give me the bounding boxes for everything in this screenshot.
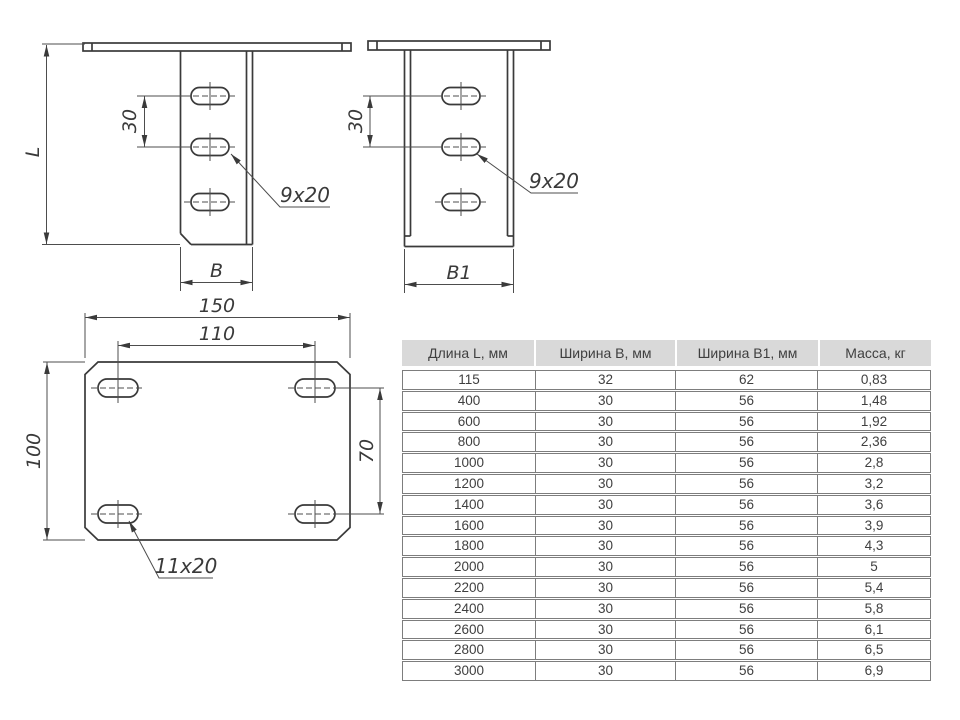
col-header-width-b1: Ширина B1, мм	[677, 340, 818, 366]
cell-width-b: 30	[536, 413, 676, 431]
plate-overall-width-dim: 150	[199, 295, 235, 317]
cell-mass: 0,83	[818, 371, 930, 389]
cell-width-b1: 56	[676, 662, 818, 680]
cell-length: 1600	[403, 517, 536, 535]
table-row: 2600 30 56 6,1	[402, 620, 931, 640]
table-row: 1200 30 56 3,2	[402, 474, 931, 494]
cell-mass: 3,2	[818, 475, 930, 493]
cell-length: 115	[403, 371, 536, 389]
technical-drawing-page: L 30 9x20 B	[0, 0, 960, 720]
cell-mass: 3,9	[818, 517, 930, 535]
cell-width-b1: 56	[676, 433, 818, 451]
cell-width-b1: 56	[676, 475, 818, 493]
cell-length: 800	[403, 433, 536, 451]
cell-length: 1200	[403, 475, 536, 493]
plate-view: 150 110 100 70 11x20	[23, 295, 384, 578]
cell-width-b: 30	[536, 662, 676, 680]
table-row: 1000 30 56 2,8	[402, 453, 931, 473]
cell-mass: 3,6	[818, 496, 930, 514]
cell-width-b: 30	[536, 537, 676, 555]
table-row: 2200 30 56 5,4	[402, 578, 931, 598]
plate-slot-size-label: 11x20	[155, 554, 218, 578]
table-row: 1600 30 56 3,9	[402, 516, 931, 536]
cell-width-b1: 56	[676, 454, 818, 472]
cell-width-b1: 56	[676, 392, 818, 410]
cell-width-b: 32	[536, 371, 676, 389]
cell-width-b: 30	[536, 475, 676, 493]
plate-hole-span-x-dim: 110	[199, 323, 235, 345]
cell-width-b1: 56	[676, 641, 818, 659]
cell-width-b: 30	[536, 517, 676, 535]
cell-length: 1000	[403, 454, 536, 472]
cell-width-b1: 56	[676, 579, 818, 597]
cell-width-b1: 56	[676, 600, 818, 618]
cell-mass: 5	[818, 558, 930, 576]
side-width-dim: B1	[446, 262, 471, 284]
cell-length: 2400	[403, 600, 536, 618]
col-header-mass: Масса, кг	[820, 340, 931, 366]
cell-mass: 6,5	[818, 641, 930, 659]
cell-width-b: 30	[536, 641, 676, 659]
front-width-dim: B	[210, 260, 223, 282]
cell-width-b1: 56	[676, 496, 818, 514]
side-view: 30 9x20 B1	[345, 41, 579, 293]
table-row: 2800 30 56 6,5	[402, 640, 931, 660]
cell-mass: 6,1	[818, 621, 930, 639]
table-row: 115 32 62 0,83	[402, 370, 931, 390]
cell-width-b: 30	[536, 496, 676, 514]
cell-width-b: 30	[536, 600, 676, 618]
cell-mass: 2,36	[818, 433, 930, 451]
table-row: 800 30 56 2,36	[402, 432, 931, 452]
cell-width-b: 30	[536, 579, 676, 597]
cell-width-b: 30	[536, 392, 676, 410]
cell-width-b: 30	[536, 454, 676, 472]
cell-length: 600	[403, 413, 536, 431]
cell-mass: 4,3	[818, 537, 930, 555]
front-view: L 30 9x20 B	[22, 43, 351, 291]
col-header-length: Длина L, мм	[402, 340, 534, 366]
cell-mass: 5,8	[818, 600, 930, 618]
table-row: 1800 30 56 4,3	[402, 536, 931, 556]
cell-width-b: 30	[536, 558, 676, 576]
cell-mass: 6,9	[818, 662, 930, 680]
front-slot-size-label: 9x20	[280, 183, 330, 207]
cell-width-b1: 62	[676, 371, 818, 389]
side-hole-spacing-dim: 30	[345, 109, 367, 133]
table-row: 2400 30 56 5,8	[402, 599, 931, 619]
front-length-dim: L	[22, 147, 44, 158]
col-header-width-b: Ширина B, мм	[536, 340, 675, 366]
spec-table-body: 115 32 62 0,83 400 30 56 1,48 600 30 56 …	[402, 370, 931, 681]
front-hole-spacing-dim: 30	[119, 109, 141, 133]
cell-mass: 1,92	[818, 413, 930, 431]
spec-table: Длина L, мм Ширина B, мм Ширина B1, мм М…	[402, 340, 931, 682]
cell-length: 1400	[403, 496, 536, 514]
cell-width-b1: 56	[676, 558, 818, 576]
cell-width-b: 30	[536, 433, 676, 451]
cell-length: 3000	[403, 662, 536, 680]
cell-width-b1: 56	[676, 621, 818, 639]
cell-width-b1: 56	[676, 517, 818, 535]
table-row: 2000 30 56 5	[402, 557, 931, 577]
cell-length: 2800	[403, 641, 536, 659]
cell-mass: 2,8	[818, 454, 930, 472]
side-slot-size-label: 9x20	[529, 169, 579, 193]
table-row: 600 30 56 1,92	[402, 412, 931, 432]
cell-length: 2000	[403, 558, 536, 576]
cell-width-b1: 56	[676, 537, 818, 555]
plate-hole-span-y-dim: 70	[356, 439, 378, 463]
cell-mass: 1,48	[818, 392, 930, 410]
table-row: 3000 30 56 6,9	[402, 661, 931, 681]
cell-mass: 5,4	[818, 579, 930, 597]
cell-width-b1: 56	[676, 413, 818, 431]
cell-length: 1800	[403, 537, 536, 555]
cell-length: 400	[403, 392, 536, 410]
spec-table-header: Длина L, мм Ширина B, мм Ширина B1, мм М…	[402, 340, 931, 366]
cell-length: 2600	[403, 621, 536, 639]
cell-width-b: 30	[536, 621, 676, 639]
cell-length: 2200	[403, 579, 536, 597]
plate-overall-height-dim: 100	[23, 433, 45, 469]
table-row: 1400 30 56 3,6	[402, 495, 931, 515]
table-row: 400 30 56 1,48	[402, 391, 931, 411]
